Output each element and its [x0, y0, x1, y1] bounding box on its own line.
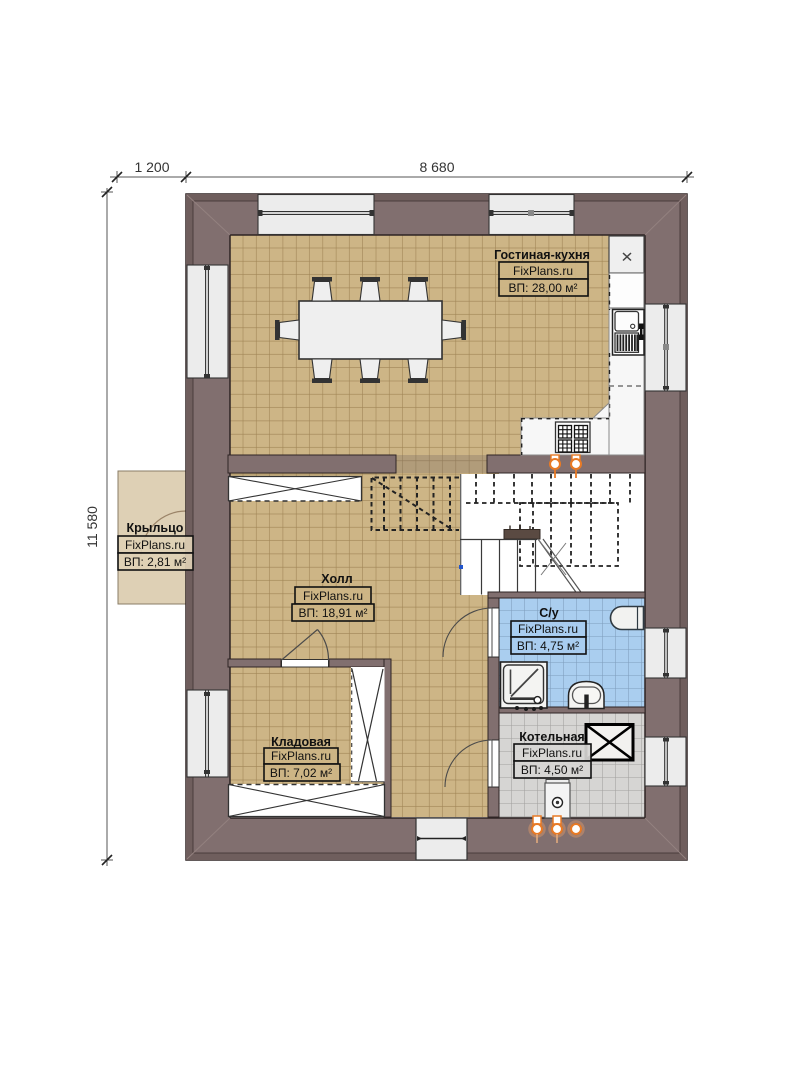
svg-text:11 580: 11 580	[84, 506, 100, 548]
svg-text:Гостиная-кухня: Гостиная-кухня	[494, 248, 590, 262]
svg-text:ВП: 4,75 м²: ВП: 4,75 м²	[517, 639, 579, 653]
svg-text:FixPlans.ru: FixPlans.ru	[303, 589, 363, 603]
svg-text:FixPlans.ru: FixPlans.ru	[518, 622, 578, 636]
svg-text:FixPlans.ru: FixPlans.ru	[522, 746, 582, 760]
svg-text:FixPlans.ru: FixPlans.ru	[271, 749, 331, 763]
svg-text:8 680: 8 680	[419, 159, 454, 175]
svg-text:ВП: 7,02 м²: ВП: 7,02 м²	[270, 766, 332, 780]
svg-text:1 200: 1 200	[134, 159, 169, 175]
svg-text:ВП: 28,00 м²: ВП: 28,00 м²	[509, 281, 578, 295]
svg-text:Крыльцо: Крыльцо	[127, 521, 184, 535]
svg-text:FixPlans.ru: FixPlans.ru	[513, 264, 573, 278]
svg-text:С/у: С/у	[539, 606, 559, 620]
svg-text:Котельная: Котельная	[519, 730, 584, 744]
svg-text:ВП: 4,50 м²: ВП: 4,50 м²	[521, 763, 583, 777]
svg-text:FixPlans.ru: FixPlans.ru	[125, 538, 185, 552]
svg-text:ВП: 2,81 м²: ВП: 2,81 м²	[124, 555, 186, 569]
svg-text:ВП: 18,91 м²: ВП: 18,91 м²	[299, 606, 368, 620]
svg-text:Кладовая: Кладовая	[271, 735, 331, 749]
svg-text:Холл: Холл	[321, 572, 352, 586]
